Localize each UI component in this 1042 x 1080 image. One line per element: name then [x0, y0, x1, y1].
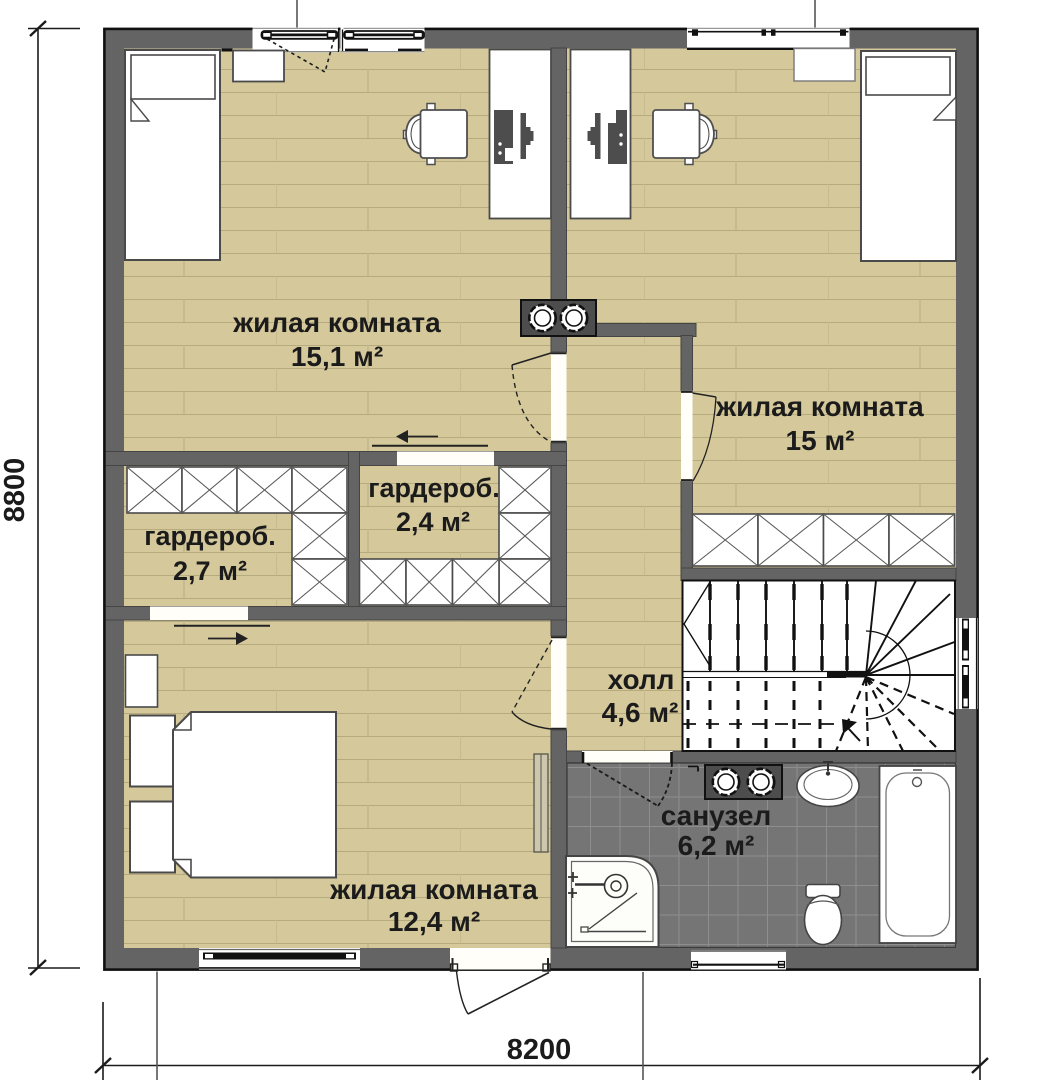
- svg-text:2,7 м²: 2,7 м²: [173, 556, 247, 586]
- svg-text:15 м²: 15 м²: [786, 425, 855, 456]
- svg-text:жилая комната: жилая комната: [715, 391, 924, 422]
- svg-text:15,1 м²: 15,1 м²: [291, 341, 383, 372]
- svg-text:холл: холл: [608, 664, 675, 695]
- svg-text:4,6 м²: 4,6 м²: [602, 697, 679, 728]
- svg-text:8800: 8800: [0, 458, 31, 523]
- svg-text:12,4 м²: 12,4 м²: [388, 906, 480, 937]
- svg-text:2,4 м²: 2,4 м²: [396, 507, 470, 537]
- svg-text:жилая комната: жилая комната: [232, 307, 441, 338]
- svg-text:8200: 8200: [507, 1034, 572, 1066]
- svg-text:жилая комната: жилая комната: [329, 874, 538, 905]
- svg-text:гардероб.: гардероб.: [144, 521, 275, 551]
- svg-text:санузел: санузел: [661, 800, 772, 831]
- svg-text:гардероб.: гардероб.: [368, 473, 499, 503]
- svg-text:6,2 м²: 6,2 м²: [678, 830, 755, 861]
